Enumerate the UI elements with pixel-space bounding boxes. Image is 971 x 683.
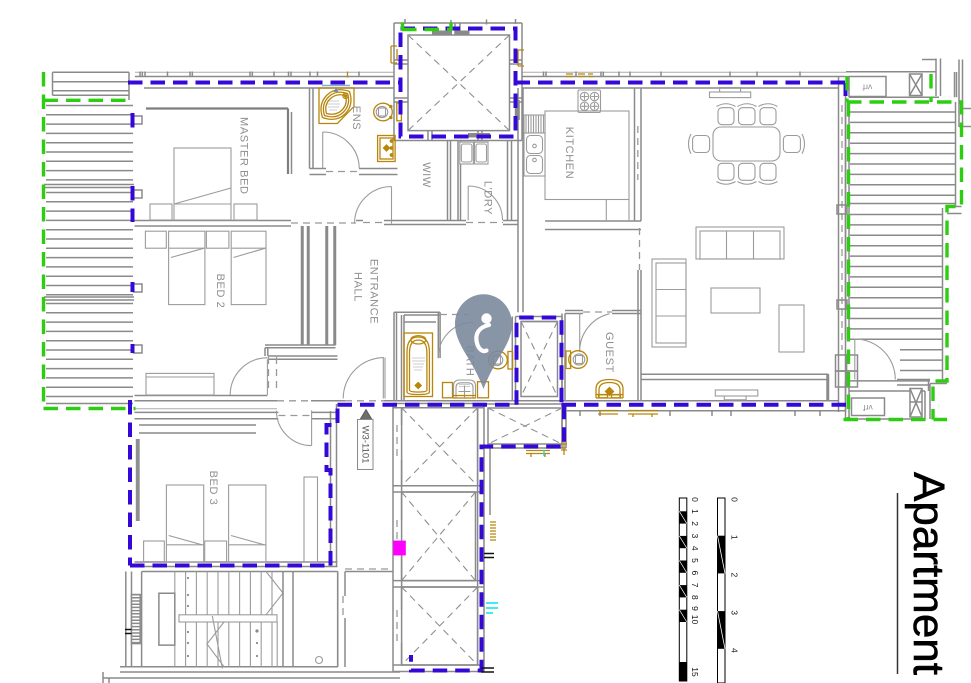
svg-text:6: 6 (690, 570, 700, 575)
svg-text:9: 9 (690, 606, 700, 611)
svg-text:2: 2 (730, 573, 740, 578)
svg-text:0: 0 (730, 497, 740, 502)
svg-text:vrf: vrf (862, 82, 872, 92)
svg-text:1: 1 (690, 509, 700, 514)
svg-text:Apartment: Apartment (904, 472, 953, 675)
svg-text:3: 3 (690, 534, 700, 539)
svg-text:L'DRY: L'DRY (482, 181, 494, 215)
svg-text:0: 0 (690, 497, 700, 502)
svg-text:4: 4 (730, 648, 740, 653)
svg-text:GUEST: GUEST (603, 332, 615, 373)
svg-text:vrf: vrf (863, 403, 873, 413)
svg-text:15: 15 (690, 667, 700, 677)
svg-text:BED 2: BED 2 (214, 274, 226, 309)
svg-text:8: 8 (690, 595, 700, 600)
svg-text:5: 5 (690, 558, 700, 563)
svg-text:4: 4 (690, 546, 700, 551)
svg-text:3: 3 (730, 610, 740, 615)
svg-text:HALL: HALL (352, 272, 364, 302)
svg-text:ENS: ENS (350, 106, 362, 130)
svg-text:10: 10 (690, 615, 700, 625)
svg-text:2: 2 (690, 521, 700, 526)
svg-text:W3-1101: W3-1101 (360, 426, 371, 464)
svg-text:ENTRANCE: ENTRANCE (367, 259, 379, 324)
svg-text:7: 7 (690, 583, 700, 588)
svg-text:MASTER BED: MASTER BED (238, 117, 250, 195)
svg-text:BED 3: BED 3 (207, 471, 219, 506)
svg-text:WIW: WIW (420, 162, 432, 188)
svg-text:1: 1 (730, 535, 740, 540)
svg-text:KITCHEN: KITCHEN (563, 127, 575, 179)
